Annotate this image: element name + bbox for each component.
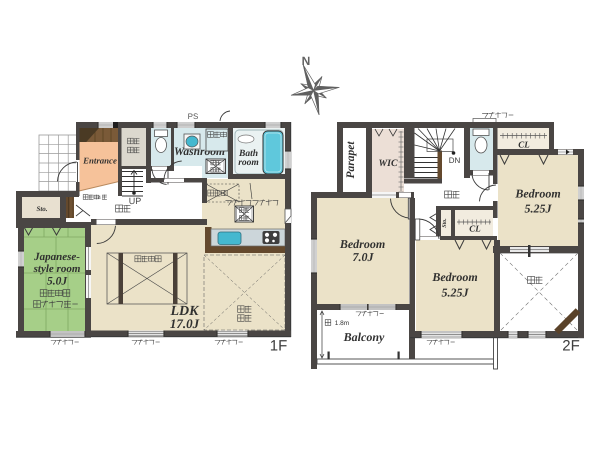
svg-text:N: N — [302, 54, 311, 68]
svg-text:4: 4 — [98, 195, 101, 201]
svg-text:Balcony: Balcony — [343, 330, 385, 344]
svg-text:1.8m: 1.8m — [335, 320, 349, 327]
svg-text:Bedroom: Bedroom — [514, 187, 560, 201]
svg-text:Bedroom: Bedroom — [339, 237, 385, 251]
svg-text:Bedroom: Bedroom — [431, 270, 477, 284]
svg-text:Sto.: Sto. — [442, 218, 448, 228]
svg-text:5.25J: 5.25J — [525, 202, 553, 216]
svg-text:7.0J: 7.0J — [353, 250, 375, 264]
svg-text:CL: CL — [518, 140, 530, 150]
svg-text:Sto.: Sto. — [36, 205, 47, 213]
svg-text:2F: 2F — [562, 338, 580, 355]
svg-text:5.25J: 5.25J — [442, 286, 470, 300]
svg-text:DN: DN — [449, 156, 461, 165]
svg-text:Entrance: Entrance — [82, 156, 117, 166]
svg-text:room: room — [238, 158, 259, 168]
svg-text:style room: style room — [33, 263, 81, 275]
svg-text:Japanese-: Japanese- — [33, 251, 80, 263]
svg-text:WIC: WIC — [378, 158, 398, 169]
svg-text:5.0J: 5.0J — [47, 276, 68, 288]
svg-text:17.0J: 17.0J — [170, 316, 200, 331]
svg-text:PS: PS — [188, 112, 199, 121]
svg-text:UP: UP — [129, 196, 142, 206]
svg-text:CL: CL — [469, 224, 481, 234]
svg-text:1F: 1F — [270, 338, 288, 355]
svg-text:Parapet: Parapet — [345, 141, 357, 179]
